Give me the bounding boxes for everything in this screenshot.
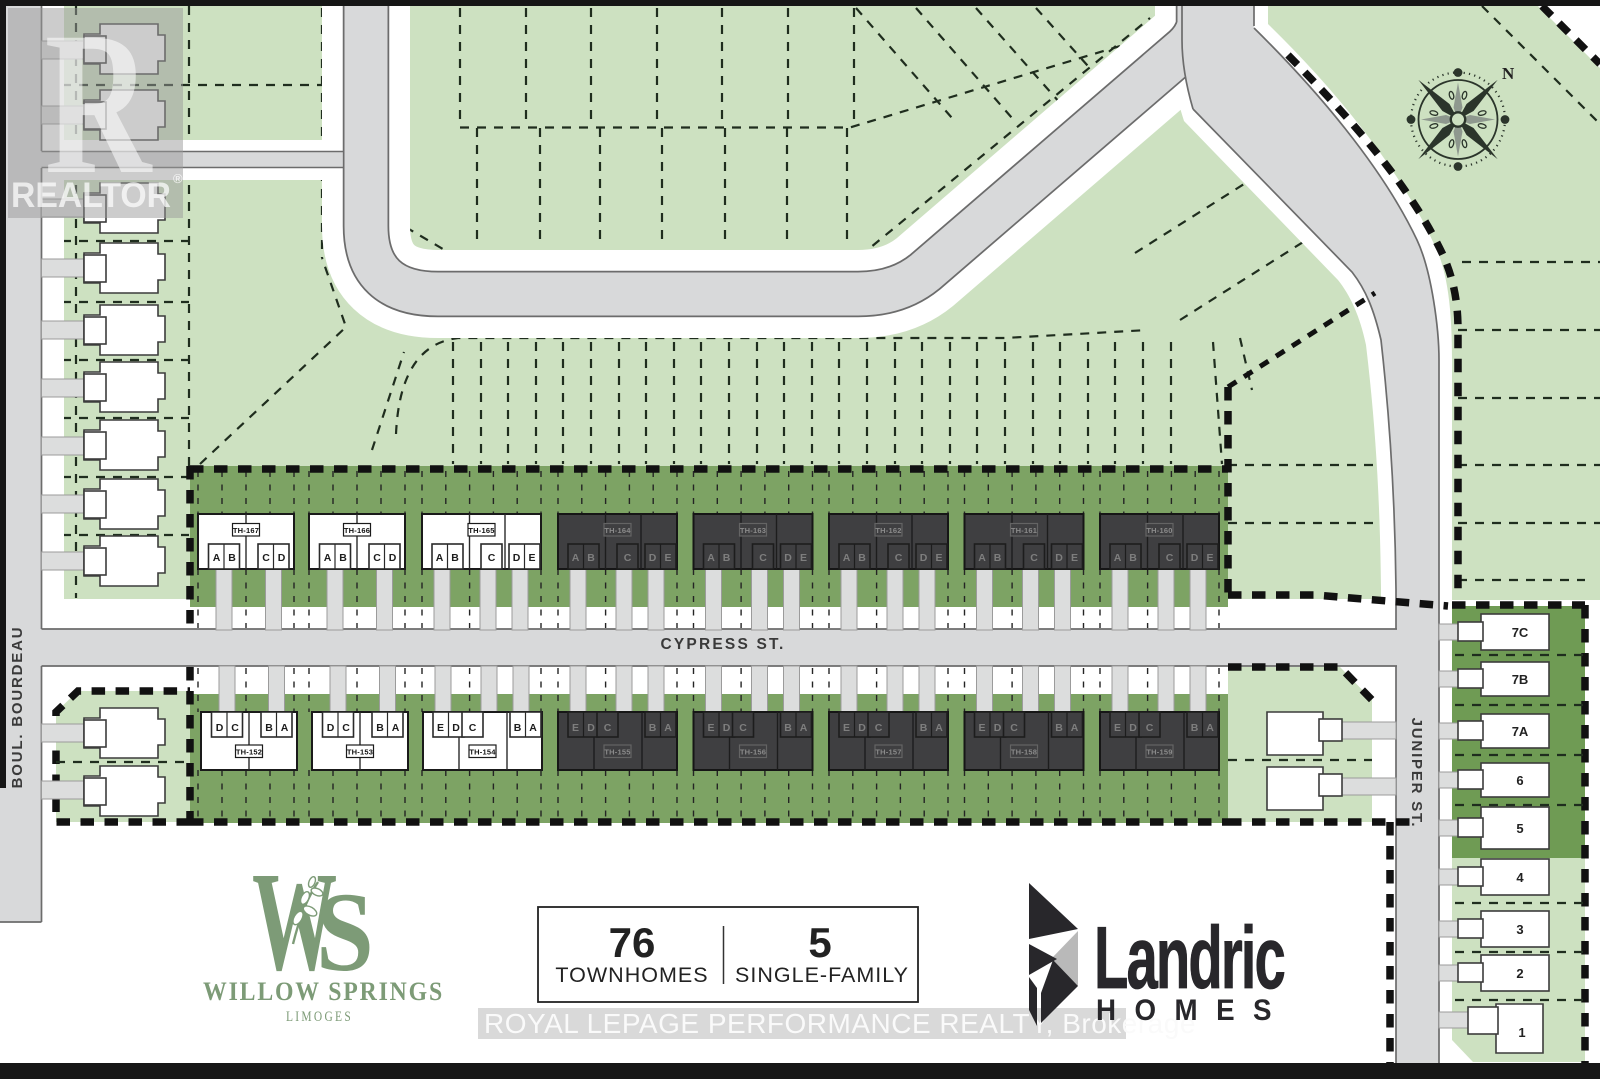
svg-text:A: A (281, 722, 289, 734)
svg-text:TOWNHOMES: TOWNHOMES (555, 963, 708, 987)
svg-text:D: D (1191, 552, 1199, 564)
svg-text:D: D (513, 552, 521, 564)
svg-text:C: C (759, 552, 767, 564)
svg-text:B: B (265, 722, 273, 734)
svg-text:E: E (800, 552, 807, 564)
svg-text:A: A (664, 722, 672, 734)
svg-text:TH-153: TH-153 (347, 747, 373, 756)
svg-text:C: C (231, 722, 239, 734)
svg-text:A: A (1114, 552, 1122, 564)
svg-text:A: A (324, 552, 332, 564)
svg-text:C: C (262, 552, 270, 564)
svg-text:B: B (1129, 552, 1137, 564)
svg-text:B: B (376, 722, 384, 734)
svg-text:D: D (784, 552, 792, 564)
svg-text:D: D (587, 722, 595, 734)
svg-text:TH-162: TH-162 (875, 526, 901, 535)
svg-text:1: 1 (1518, 1025, 1525, 1040)
svg-text:TH-165: TH-165 (468, 526, 494, 535)
svg-text:TH-166: TH-166 (344, 526, 370, 535)
svg-text:A: A (436, 552, 444, 564)
svg-text:E: E (1206, 552, 1213, 564)
svg-text:2: 2 (1516, 966, 1523, 981)
svg-text:C: C (875, 722, 883, 734)
svg-text:A: A (392, 722, 400, 734)
svg-text:E: E (935, 552, 942, 564)
svg-text:7B: 7B (1512, 672, 1529, 687)
svg-text:D: D (1129, 722, 1137, 734)
svg-text:D: D (994, 722, 1002, 734)
svg-text:C: C (342, 722, 350, 734)
svg-text:CYPRESS ST.: CYPRESS ST. (661, 636, 786, 653)
svg-text:C: C (895, 552, 903, 564)
svg-text:D: D (389, 552, 397, 564)
svg-text:D: D (920, 552, 928, 564)
svg-text:B: B (784, 722, 792, 734)
svg-text:C: C (739, 722, 747, 734)
svg-text:B: B (1055, 722, 1063, 734)
svg-text:C: C (1030, 552, 1038, 564)
svg-text:BOUL. BOURDEAU: BOUL. BOURDEAU (9, 626, 26, 789)
svg-text:E: E (707, 722, 714, 734)
svg-text:E: E (437, 722, 444, 734)
svg-text:HOMES: HOMES (1096, 994, 1290, 1027)
svg-text:B: B (1191, 722, 1199, 734)
svg-text:A: A (707, 552, 715, 564)
svg-text:TH-163: TH-163 (740, 526, 766, 535)
svg-text:7C: 7C (1512, 625, 1529, 640)
svg-text:Landric: Landric (1094, 908, 1284, 1007)
svg-text:TH-158: TH-158 (1011, 747, 1037, 756)
svg-text:D: D (723, 722, 731, 734)
svg-text:SINGLE-FAMILY: SINGLE-FAMILY (735, 963, 909, 987)
svg-text:A: A (1206, 722, 1214, 734)
svg-text:7A: 7A (1512, 724, 1529, 739)
svg-text:C: C (604, 722, 612, 734)
svg-text:TH-160: TH-160 (1146, 526, 1172, 535)
svg-text:C: C (488, 552, 496, 564)
svg-text:JUNIPER ST.: JUNIPER ST. (1408, 718, 1425, 829)
svg-text:E: E (1071, 552, 1078, 564)
svg-text:A: A (572, 552, 580, 564)
svg-text:TH-156: TH-156 (740, 747, 766, 756)
svg-text:B: B (514, 722, 522, 734)
svg-text:E: E (843, 722, 850, 734)
svg-text:C: C (1146, 722, 1154, 734)
svg-text:C: C (373, 552, 381, 564)
svg-text:C: C (469, 722, 477, 734)
svg-text:B: B (451, 552, 459, 564)
svg-text:A: A (529, 722, 537, 734)
svg-text:A: A (213, 552, 221, 564)
svg-text:E: E (978, 722, 985, 734)
svg-text:TH-161: TH-161 (1011, 526, 1037, 535)
svg-text:A: A (1071, 722, 1079, 734)
svg-text:C: C (624, 552, 632, 564)
svg-text:A: A (935, 722, 943, 734)
svg-text:B: B (649, 722, 657, 734)
svg-text:E: E (572, 722, 579, 734)
svg-text:C: C (1010, 722, 1018, 734)
svg-text:LIMOGES: LIMOGES (286, 1009, 353, 1025)
svg-text:TH-155: TH-155 (604, 747, 630, 756)
svg-text:B: B (339, 552, 347, 564)
svg-text:D: D (1055, 552, 1063, 564)
svg-text:TH-157: TH-157 (875, 747, 901, 756)
svg-text:WILLOW SPRINGS: WILLOW SPRINGS (203, 977, 444, 1006)
svg-text:REALTOR: REALTOR (11, 176, 171, 215)
svg-text:B: B (994, 552, 1002, 564)
svg-text:A: A (978, 552, 986, 564)
svg-text:E: E (528, 552, 535, 564)
svg-text:76: 76 (609, 919, 656, 966)
svg-text:TH-152: TH-152 (236, 747, 262, 756)
svg-text:B: B (228, 552, 236, 564)
svg-text:B: B (920, 722, 928, 734)
svg-text:ROYAL LEPAGE PERFORMANCE REALT: ROYAL LEPAGE PERFORMANCE REALTY, Brokera… (484, 1008, 1196, 1039)
svg-text:D: D (327, 722, 335, 734)
svg-text:B: B (587, 552, 595, 564)
svg-text:3: 3 (1516, 922, 1523, 937)
svg-text:D: D (858, 722, 866, 734)
svg-text:B: B (723, 552, 731, 564)
svg-text:6: 6 (1516, 773, 1523, 788)
svg-text:E: E (664, 552, 671, 564)
svg-text:C: C (1166, 552, 1174, 564)
svg-text:D: D (452, 722, 460, 734)
svg-text:E: E (1114, 722, 1121, 734)
svg-text:®: ® (173, 171, 183, 186)
svg-text:TH-167: TH-167 (233, 526, 259, 535)
svg-text:A: A (843, 552, 851, 564)
svg-text:D: D (278, 552, 286, 564)
svg-text:TH-164: TH-164 (604, 526, 631, 535)
svg-text:N: N (1502, 64, 1515, 83)
svg-text:A: A (800, 722, 808, 734)
svg-text:TH-159: TH-159 (1146, 747, 1172, 756)
svg-text:5: 5 (1516, 821, 1523, 836)
svg-text:D: D (216, 722, 224, 734)
svg-text:5: 5 (808, 919, 831, 966)
svg-text:B: B (858, 552, 866, 564)
svg-text:4: 4 (1516, 870, 1524, 885)
svg-text:D: D (649, 552, 657, 564)
svg-text:TH-154: TH-154 (469, 747, 496, 756)
